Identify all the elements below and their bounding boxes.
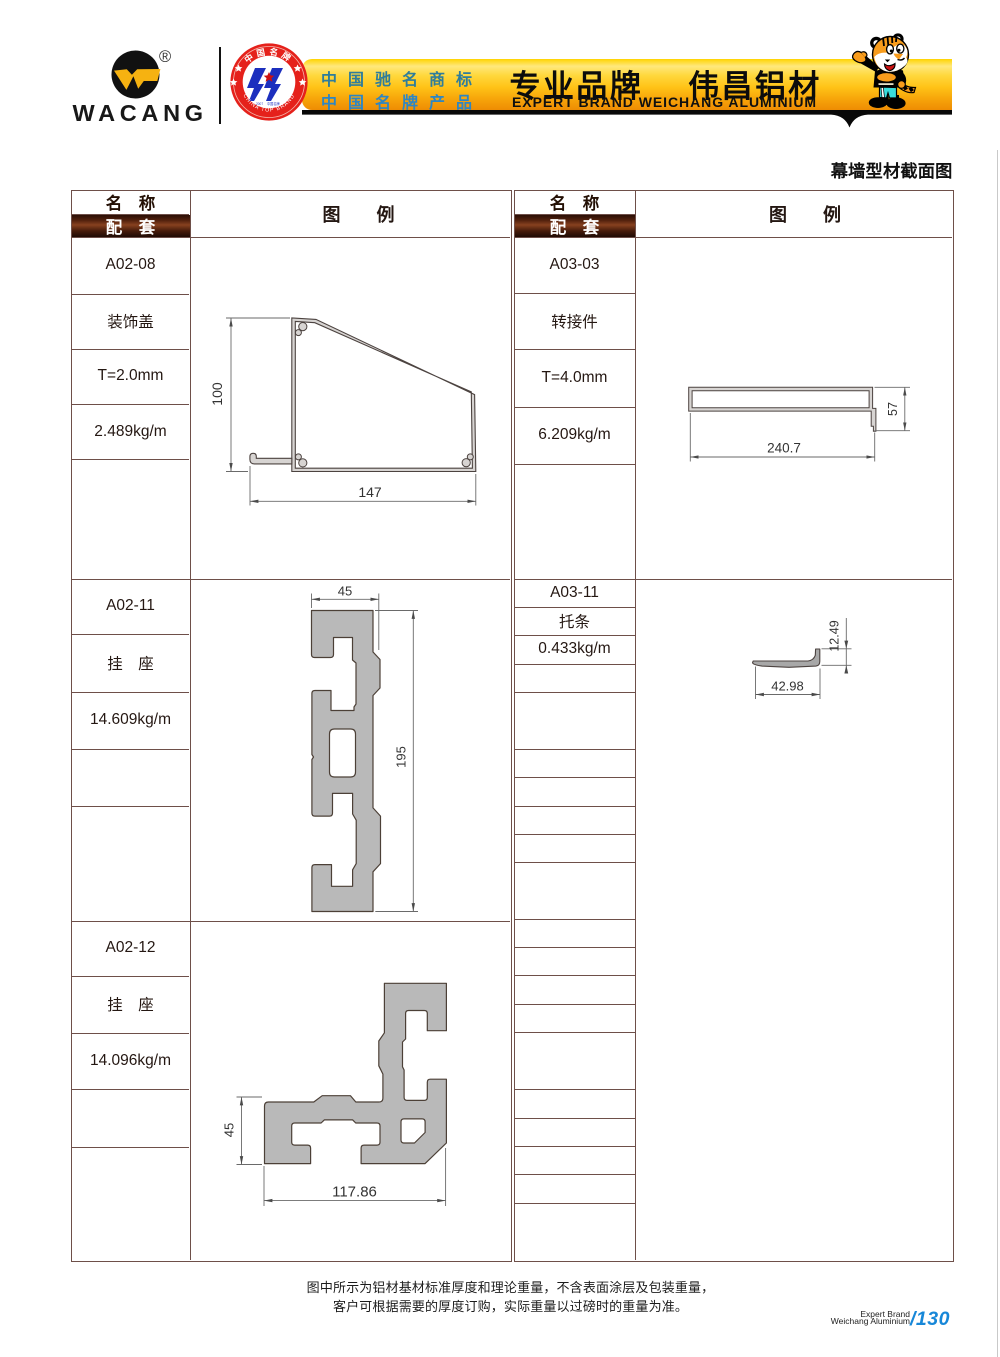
svg-text:195: 195 — [394, 746, 409, 768]
svg-text:147: 147 — [358, 484, 382, 500]
svg-text:240.7: 240.7 — [767, 441, 801, 456]
svg-text:117.86: 117.86 — [332, 1184, 377, 1201]
svg-text:中国名牌: 中国名牌 — [267, 101, 281, 106]
svg-text:100: 100 — [210, 382, 225, 406]
svg-text:12.49: 12.49 — [828, 620, 842, 651]
svg-text:45: 45 — [222, 1123, 237, 1137]
svg-text:45: 45 — [338, 584, 352, 599]
svg-text:42.98: 42.98 — [771, 679, 804, 694]
svg-text:57: 57 — [886, 402, 900, 416]
